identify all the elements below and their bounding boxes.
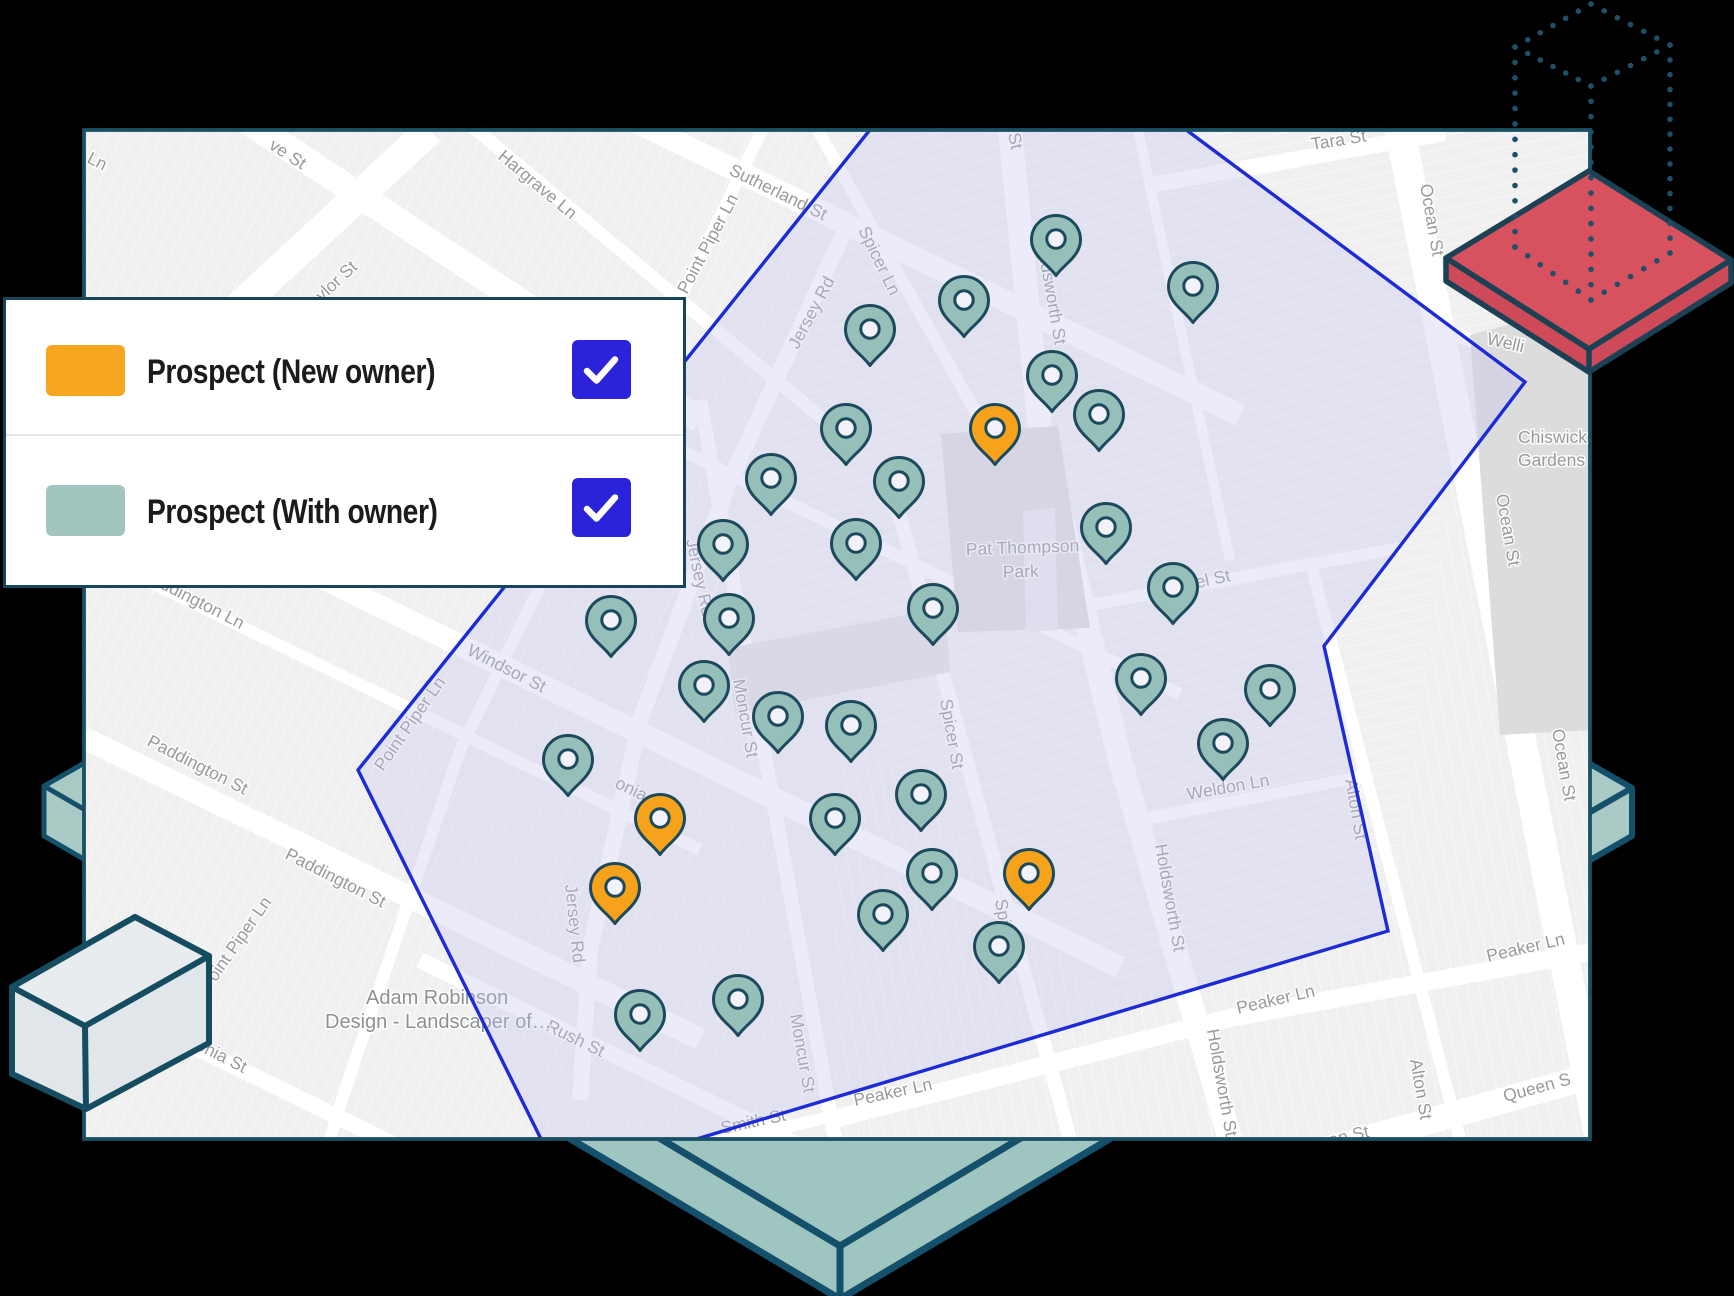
svg-text:Chiswick: Chiswick [1518, 427, 1587, 447]
svg-text:Gardens: Gardens [1518, 450, 1585, 470]
